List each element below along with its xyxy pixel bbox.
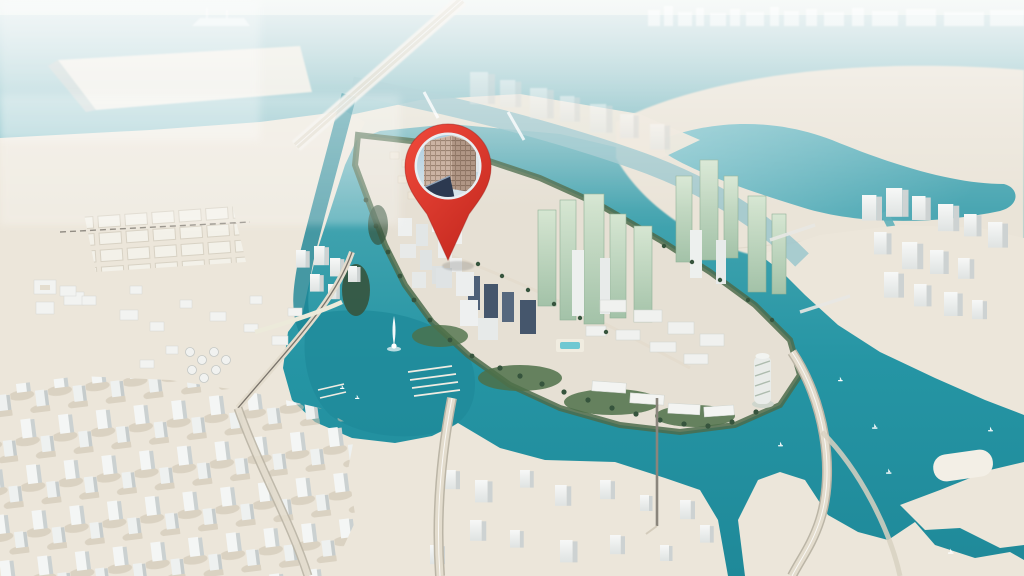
haze-corner [0, 0, 260, 140]
pin-shadow [442, 261, 474, 271]
island-pool [556, 339, 584, 352]
spiral-tower [752, 353, 774, 408]
white-block-district-southwest [0, 376, 356, 576]
aerial-masterplan-render [0, 0, 1024, 576]
